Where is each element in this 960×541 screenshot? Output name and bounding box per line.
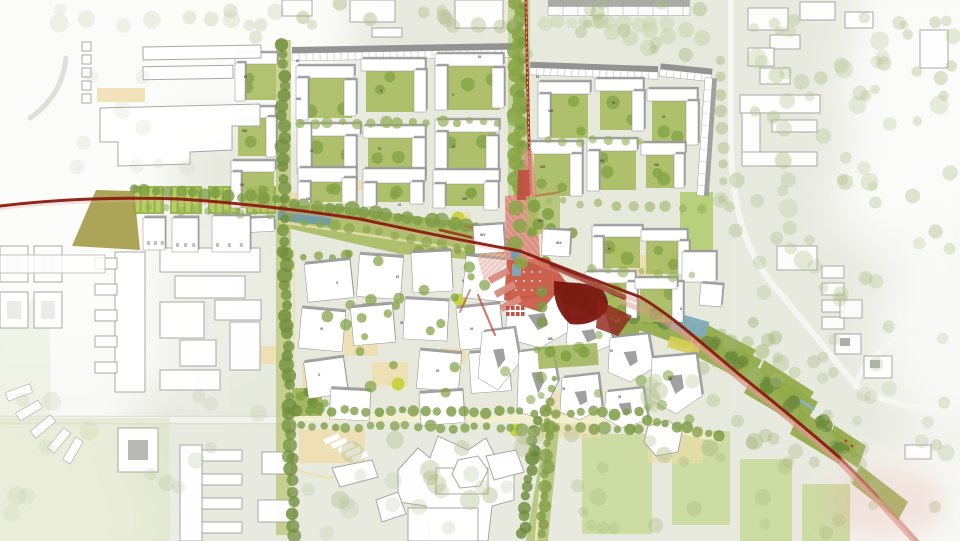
svg-text:VI: VI [436,369,439,373]
svg-text:VI: VI [470,327,473,331]
svg-text:VII: VII [668,377,672,381]
svg-text:VI: VI [452,145,455,149]
svg-text:VI: VI [612,101,615,105]
svg-text:VII: VII [306,197,310,201]
svg-text:XB: XB [548,337,553,341]
svg-text:VI: VI [618,395,621,399]
svg-text:VIII: VIII [462,197,467,201]
svg-text:XII: XII [240,183,244,187]
svg-text:VIII: VIII [242,129,247,133]
svg-text:VII: VII [600,159,604,163]
svg-text:XIX: XIX [556,241,562,245]
svg-text:VI: VI [400,321,403,325]
svg-text:VI: VI [378,147,381,151]
svg-text:VIII: VIII [296,97,301,101]
svg-text:VIII: VIII [654,163,659,167]
svg-text:VIII: VIII [548,109,553,113]
svg-text:VI: VI [662,115,665,119]
svg-text:XIV: XIV [538,219,544,223]
svg-text:VIII: VIII [540,165,545,169]
svg-text:VI: VI [320,327,323,331]
svg-text:VI: VI [562,387,565,391]
svg-text:XIV: XIV [480,233,486,237]
svg-text:VIII: VIII [600,293,605,297]
svg-text:VI: VI [310,149,313,153]
svg-text:VI: VI [398,203,401,207]
